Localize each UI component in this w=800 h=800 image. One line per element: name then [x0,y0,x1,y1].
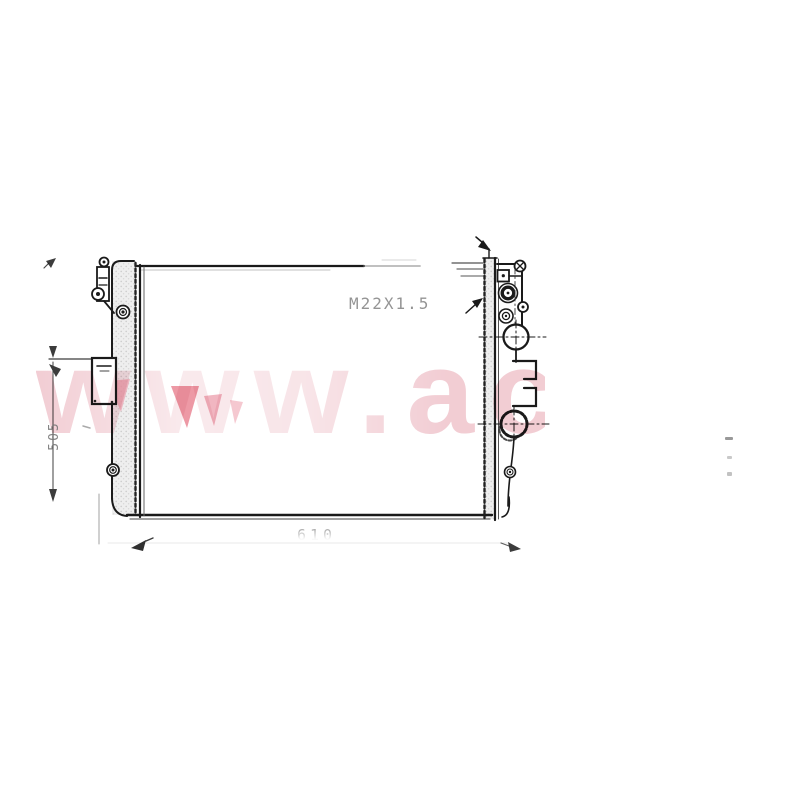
faded-mark [725,437,733,440]
height-dimension-label: 505 [47,414,63,458]
faded-mark [727,472,732,476]
arrow-icon [508,542,521,552]
radiator-technical-drawing: www.ac M22X1.5 505 610 [0,0,800,800]
width-dimension-label: 610 [297,526,351,544]
watermark-accent-shape [230,400,243,424]
faded-mark [727,456,732,459]
arrow-icon [49,489,57,502]
arrow-icon [131,540,146,551]
arrow-icon [49,346,57,358]
watermark-accent-shape [204,394,222,426]
watermark-accent-shape [171,386,199,428]
right-mounting-bracket [513,361,536,406]
arrow-icon [478,240,491,251]
top-left-bracket [92,258,114,314]
drawing-canvas [0,0,800,800]
arrow-icon [49,364,61,377]
arrow-icon [46,258,56,268]
thread-spec-label: M22X1.5 [349,294,430,313]
tank-shading [112,258,496,519]
